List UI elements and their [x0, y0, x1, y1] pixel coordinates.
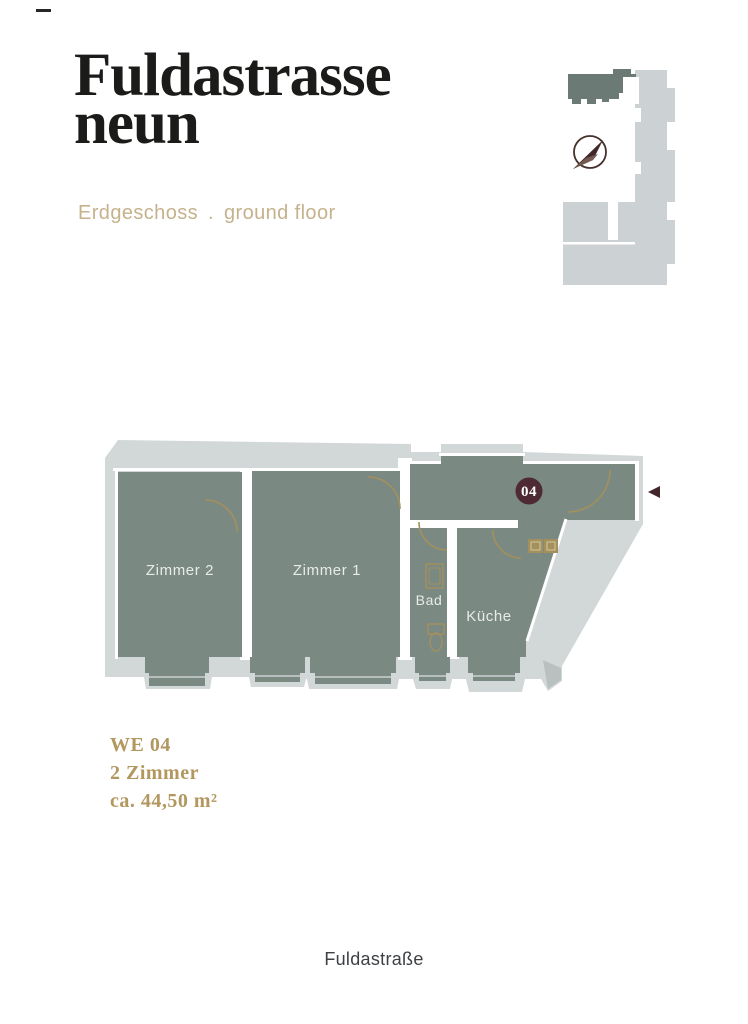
overview-highlighted-unit: [568, 69, 639, 104]
floor-plan: Zimmer 2 Zimmer 1 Bad Küche 04: [95, 428, 670, 708]
street-label: Fuldastraße: [0, 949, 748, 970]
unit-badge-number: 04: [521, 484, 537, 500]
page-title: Fuldastrasseneun: [74, 52, 391, 148]
floor-label-de: Erdgeschoss: [78, 202, 198, 225]
unit-number-badge: 04: [516, 478, 543, 505]
room-label-zimmer-1: Zimmer 1: [293, 562, 361, 579]
unit-id: WE 04: [110, 731, 218, 759]
room-label-bad: Bad: [416, 592, 443, 608]
page-dash-marker: [36, 9, 51, 12]
compass-north-arrow-icon: [573, 136, 606, 169]
room-zimmer-2: [118, 472, 242, 686]
room-label-zimmer-2: Zimmer 2: [146, 562, 214, 579]
unit-info-block: WE 04 2 Zimmer ca. 44,50 m²: [110, 731, 218, 815]
kueche-sink-unit: [528, 539, 543, 553]
room-label-kueche: Küche: [466, 608, 512, 625]
building-overview-map: [561, 62, 683, 288]
floor-label-en: ground floor: [224, 202, 336, 225]
brochure-page: Fuldastrasseneun Erdgeschoss . ground fl…: [0, 0, 748, 1024]
unit-area: ca. 44,50 m²: [110, 787, 218, 815]
unit-room-count: 2 Zimmer: [110, 759, 218, 787]
floor-subtitle: Erdgeschoss . ground floor: [78, 202, 336, 225]
entrance-left-arrow-icon: [648, 486, 660, 498]
floor-separator-dot: .: [208, 202, 214, 225]
